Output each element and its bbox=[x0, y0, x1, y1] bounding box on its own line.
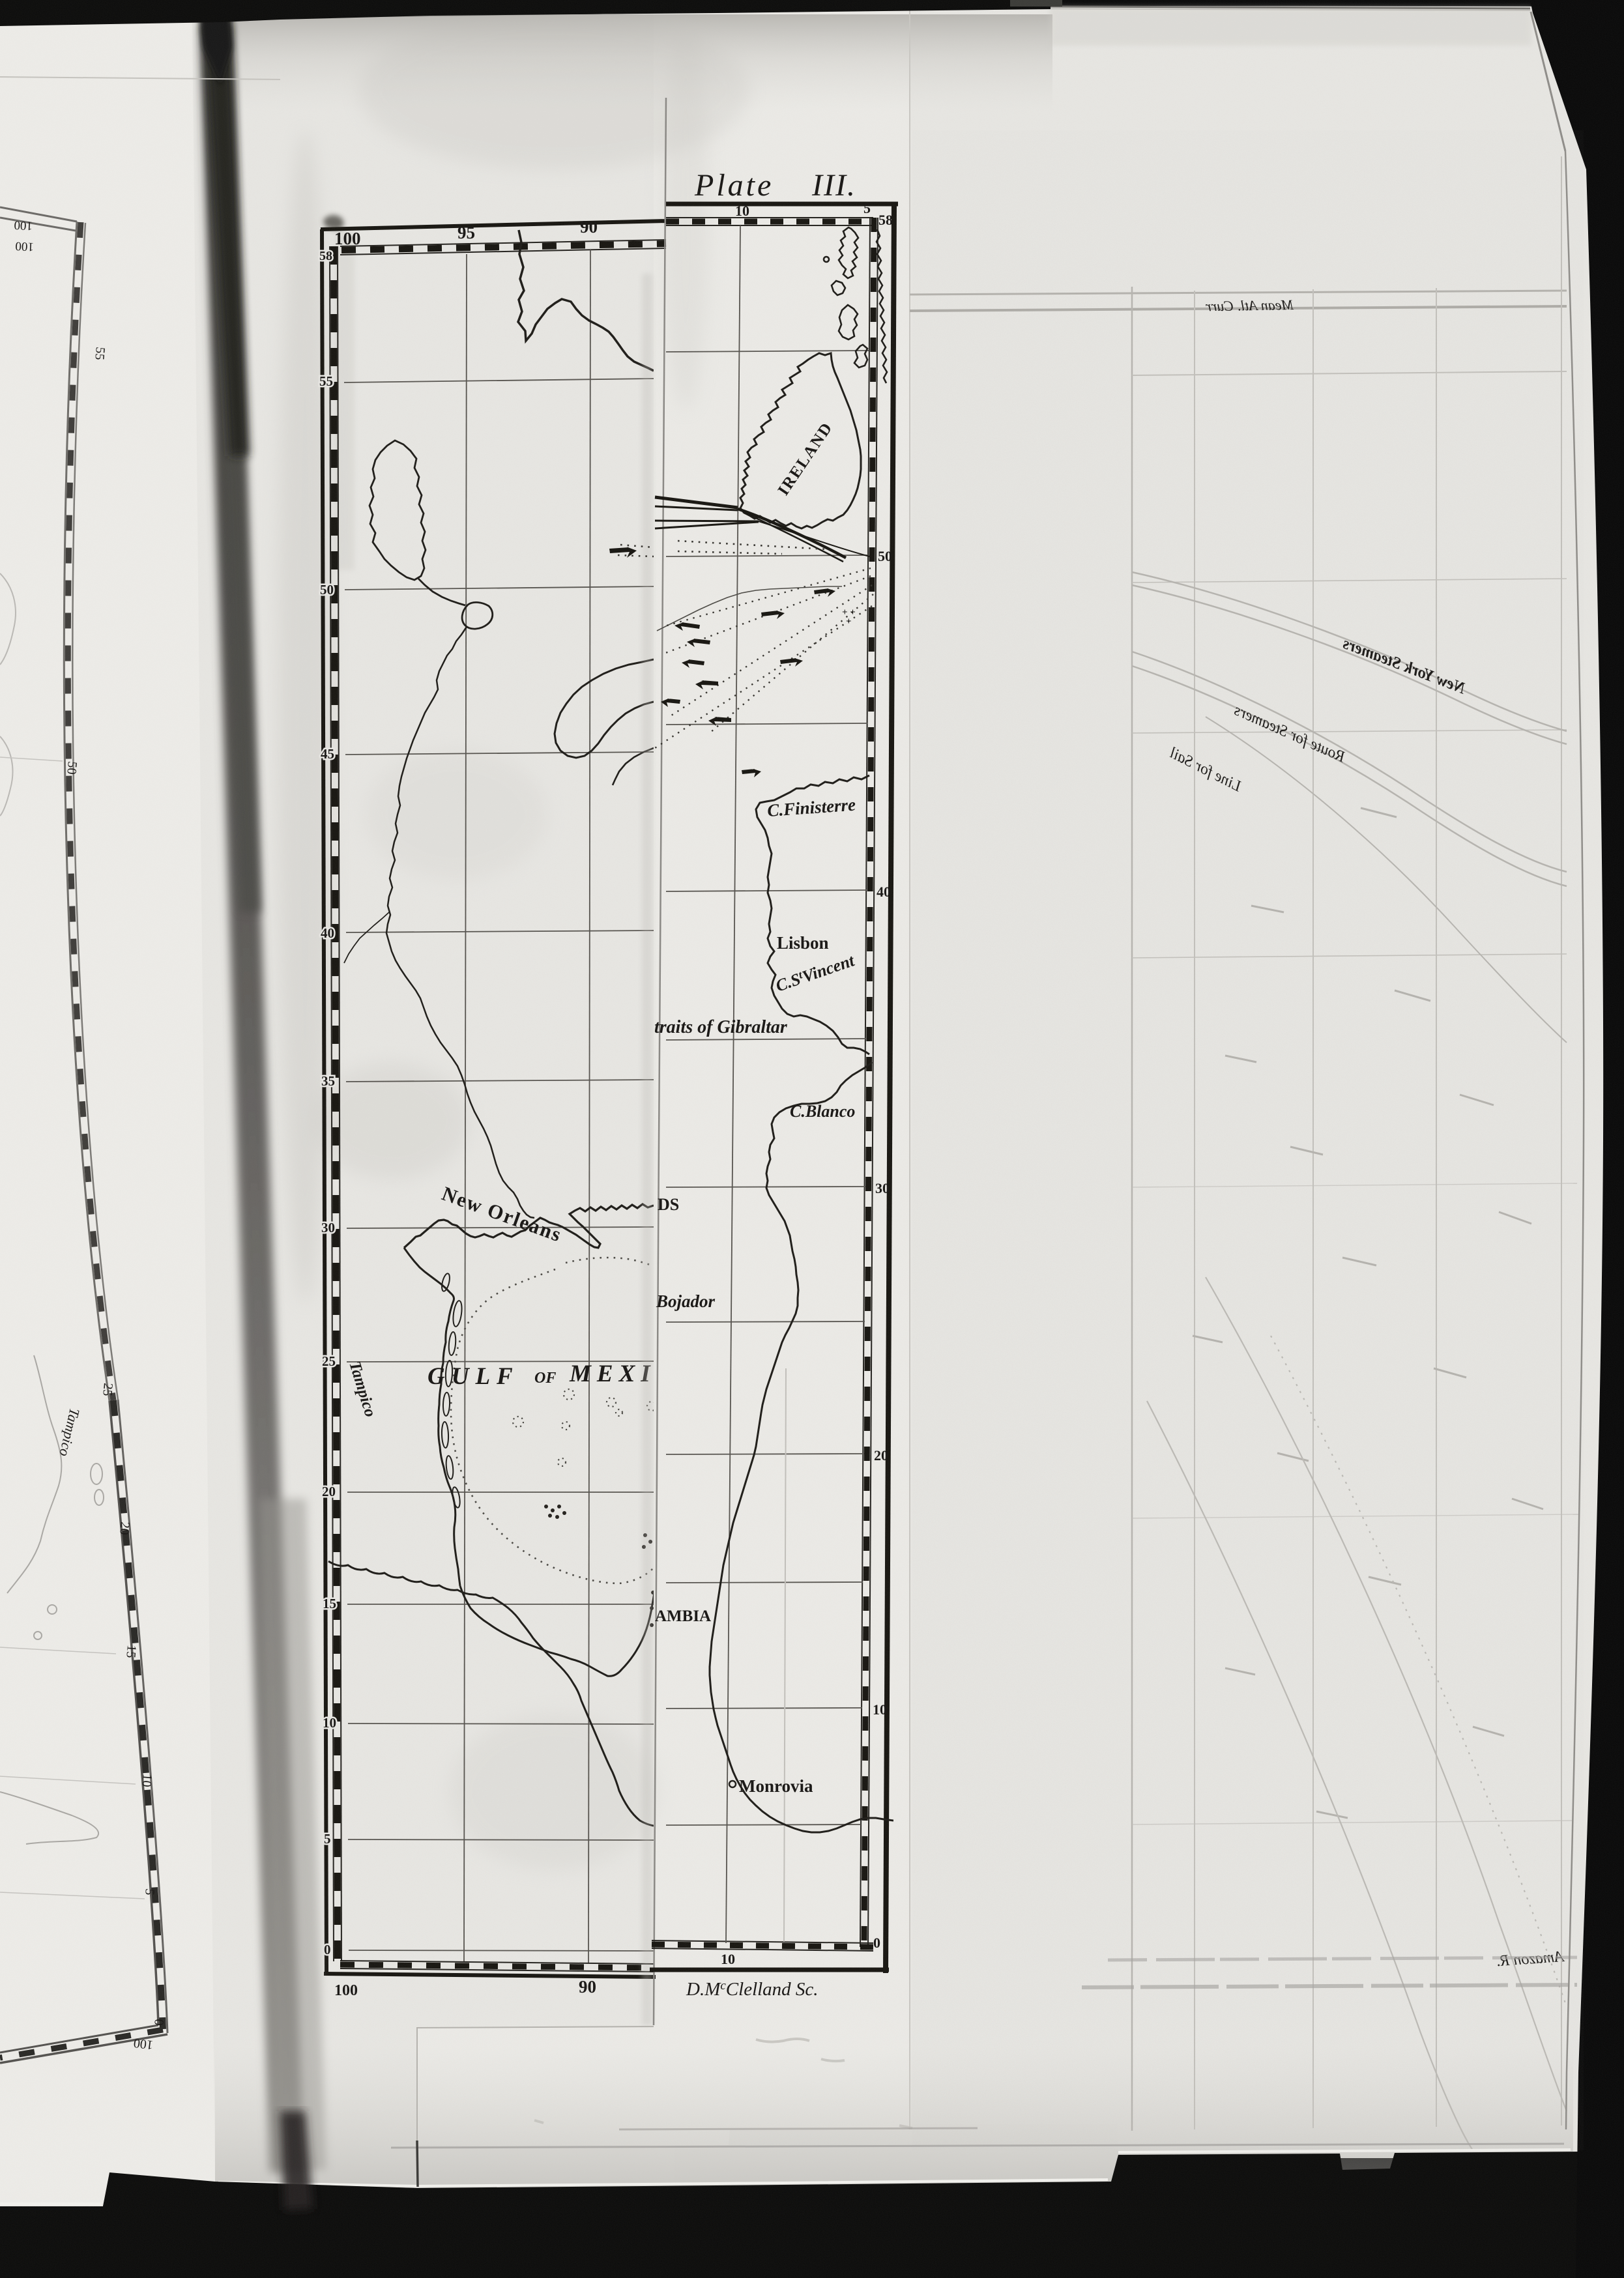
svg-text:0: 0 bbox=[873, 1935, 880, 1951]
svg-text:40: 40 bbox=[321, 925, 334, 941]
svg-text:30: 30 bbox=[321, 1220, 335, 1235]
svg-text:100: 100 bbox=[15, 239, 35, 253]
svg-text:10: 10 bbox=[735, 203, 749, 219]
svg-text:20: 20 bbox=[874, 1447, 888, 1463]
svg-text:50: 50 bbox=[64, 761, 80, 775]
svg-text:traits of Gibraltar: traits of Gibraltar bbox=[654, 1017, 788, 1037]
svg-text:10: 10 bbox=[721, 1951, 735, 1967]
svg-text:0: 0 bbox=[151, 2019, 166, 2026]
svg-text:45: 45 bbox=[321, 746, 334, 762]
svg-text:35: 35 bbox=[321, 1073, 335, 1089]
svg-text:50: 50 bbox=[320, 582, 334, 598]
svg-text:Monrovia: Monrovia bbox=[739, 1776, 813, 1796]
svg-text:Bojador: Bojador bbox=[656, 1291, 716, 1311]
svg-text:55: 55 bbox=[92, 347, 108, 361]
svg-text:15: 15 bbox=[123, 1645, 139, 1659]
svg-text:58: 58 bbox=[878, 212, 893, 228]
svg-text:25: 25 bbox=[322, 1353, 336, 1369]
svg-text:5: 5 bbox=[324, 1831, 331, 1847]
svg-text:55: 55 bbox=[319, 373, 333, 389]
svg-text:D.McClelland Sc.: D.McClelland Sc. bbox=[686, 1979, 819, 2000]
svg-text:DS: DS bbox=[658, 1195, 679, 1214]
svg-text:III.: III. bbox=[811, 168, 856, 203]
svg-text:10: 10 bbox=[139, 1774, 154, 1788]
svg-text:15: 15 bbox=[323, 1596, 336, 1611]
svg-text:30: 30 bbox=[875, 1180, 890, 1196]
svg-text:20: 20 bbox=[322, 1484, 336, 1499]
svg-text:GULF: GULF bbox=[428, 1363, 519, 1390]
svg-text:10: 10 bbox=[873, 1701, 887, 1718]
svg-text:25: 25 bbox=[100, 1383, 115, 1397]
svg-text:5: 5 bbox=[142, 1888, 157, 1896]
svg-text:100: 100 bbox=[334, 1982, 358, 1999]
svg-text:+: + bbox=[846, 616, 852, 627]
svg-text:Plate: Plate bbox=[694, 168, 774, 203]
svg-text:90: 90 bbox=[579, 1977, 596, 1997]
svg-text:100: 100 bbox=[334, 229, 361, 248]
svg-text:10: 10 bbox=[323, 1715, 336, 1731]
svg-text:90: 90 bbox=[580, 217, 598, 237]
svg-text:20: 20 bbox=[117, 1521, 132, 1536]
svg-text:AMBIA: AMBIA bbox=[655, 1608, 711, 1625]
svg-text:Mean Atl. Curr: Mean Atl. Curr bbox=[1206, 296, 1295, 314]
svg-text:100: 100 bbox=[14, 218, 33, 233]
svg-text:Lisbon: Lisbon bbox=[777, 933, 829, 953]
svg-text:40: 40 bbox=[877, 884, 891, 900]
svg-text:100: 100 bbox=[133, 2036, 154, 2052]
svg-text:95: 95 bbox=[457, 223, 475, 242]
svg-text:0: 0 bbox=[324, 1942, 331, 1957]
svg-text:OF: OF bbox=[534, 1370, 556, 1387]
svg-text:C.Blanco: C.Blanco bbox=[790, 1102, 855, 1121]
svg-text:5: 5 bbox=[863, 200, 871, 216]
svg-text:58: 58 bbox=[319, 249, 332, 263]
svg-text:50: 50 bbox=[878, 548, 892, 564]
